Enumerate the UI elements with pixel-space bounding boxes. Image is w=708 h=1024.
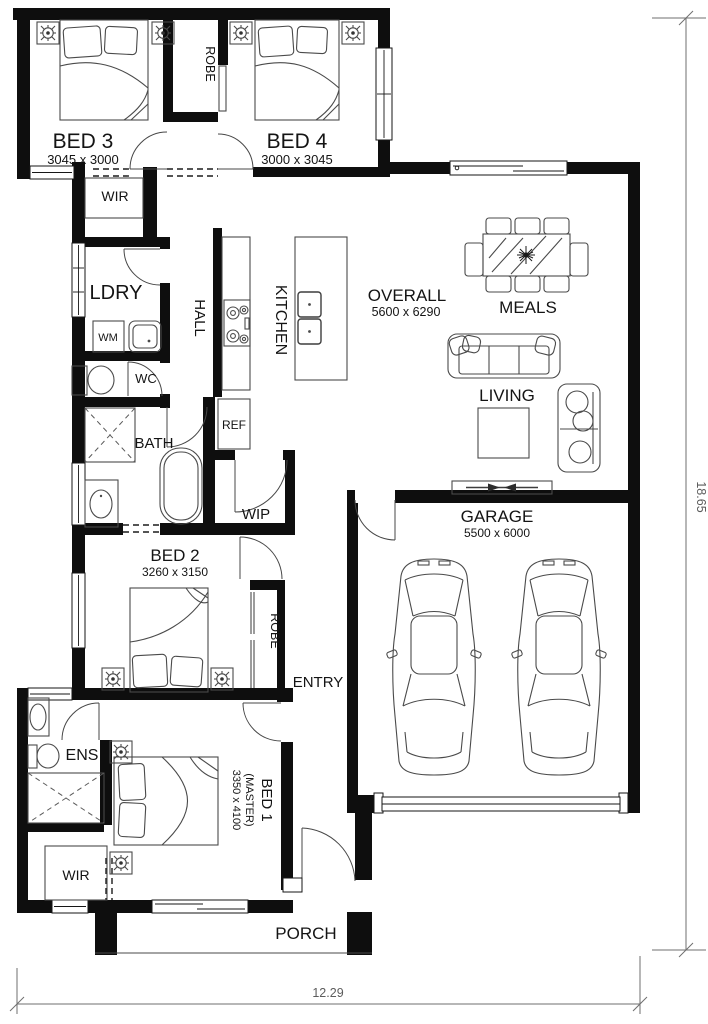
door-bed4 (218, 134, 253, 169)
room-label-bed2: BED 2 (150, 546, 199, 565)
porch-pier-left (95, 912, 117, 955)
overall-label: OVERALL (368, 286, 446, 305)
window-bed1 (152, 900, 248, 913)
porch-pier-right (347, 912, 372, 955)
ens-shower (28, 773, 104, 823)
bed2-bed (130, 588, 208, 692)
cooktop (224, 300, 250, 346)
room-label-ens: ENS (66, 747, 99, 764)
room-dims-bed1: 3350 x 4100 (230, 770, 242, 831)
window-bed3 (30, 166, 74, 179)
robe-front (219, 66, 226, 111)
car-icon (386, 559, 482, 775)
door-wip (235, 460, 287, 512)
fan-icon (37, 22, 59, 44)
fan-icon (110, 852, 132, 874)
fan-icon (110, 741, 132, 763)
room-label-wir-bed1: WIR (62, 867, 89, 883)
room-label-entry: ENTRY (293, 674, 344, 691)
fixture-label-wm: WM (98, 332, 118, 344)
dimension-depth-value: 18.65 (694, 481, 708, 512)
door-front (283, 828, 355, 892)
fixture-label-ref: REF (222, 418, 246, 432)
door-bed2 (240, 537, 282, 579)
door-bed3 (130, 132, 167, 169)
room-label-robe-top: ROBE (203, 46, 217, 81)
room-label-wip: WIP (242, 506, 270, 523)
sofa (448, 334, 560, 378)
room-label-bed3: BED 3 (53, 130, 114, 153)
robe-bed2-front (251, 592, 254, 688)
floor-plan-drawing: BED 3 3045 x 3000 BED 4 3000 x 3045 ROBE… (0, 0, 708, 1024)
garage-door (374, 793, 628, 813)
room-label-bed1-master: (MASTER) (243, 773, 255, 826)
dimension-width: 12.29 (10, 956, 647, 1014)
coffee-table (478, 408, 529, 458)
fan-icon (230, 22, 252, 44)
door-ldry (124, 249, 160, 285)
bath-shower (85, 408, 135, 462)
room-label-wir-top: WIR (101, 188, 128, 204)
armchair-chaise (558, 384, 600, 472)
window-bath (72, 463, 85, 525)
laundry-tub (129, 321, 161, 352)
fan-icon (342, 22, 364, 44)
window-bed2 (72, 573, 85, 648)
bathtub (160, 448, 202, 524)
dimension-width-value: 12.29 (312, 986, 343, 1000)
room-label-garage: GARAGE (461, 507, 534, 526)
ens-toilet (28, 744, 59, 768)
room-label-hall: HALL (191, 299, 208, 337)
table-centerpiece (517, 246, 535, 264)
room-label-bath: BATH (135, 435, 174, 452)
room-dims-garage: 5500 x 6000 (464, 526, 530, 540)
dimension-depth: 18.65 (652, 11, 708, 957)
room-dims-bed2: 3260 x 3150 (142, 565, 208, 579)
bed3-bed (60, 20, 148, 120)
room-label-ldry: LDRY (90, 282, 143, 304)
room-label-meals: MEALS (499, 298, 557, 317)
room-label-kitchen: KITCHEN (272, 285, 289, 355)
bed1-bed (114, 757, 218, 845)
island-bench (295, 237, 347, 380)
floor-plan-page: BED 3 3045 x 3000 BED 4 3000 x 3045 ROBE… (0, 0, 708, 1024)
dining-table (465, 218, 588, 292)
window-wir (52, 900, 88, 913)
car-icon (511, 559, 607, 775)
room-label-porch: PORCH (275, 924, 336, 943)
bath-vanity (85, 480, 118, 527)
room-label-wc: WC (135, 371, 157, 386)
door-garage-internal (355, 500, 395, 540)
room-label-robe-bed2: ROBE (268, 613, 282, 648)
fan-icon (102, 668, 124, 690)
room-label-living: LIVING (479, 386, 535, 405)
room-dims-bed4: 3000 x 3045 (261, 152, 333, 167)
window-meals (450, 161, 567, 175)
fan-icon (211, 668, 233, 690)
overall-dims: 5600 x 6290 (372, 305, 441, 319)
window-bed4 (376, 48, 392, 140)
room-label-bed1: BED 1 (258, 778, 275, 821)
window-ldry (72, 243, 85, 317)
ens-vanity (28, 698, 49, 736)
room-dims-bed3: 3045 x 3000 (47, 152, 119, 167)
room-label-bed4: BED 4 (267, 130, 328, 153)
door-bed1 (243, 703, 281, 741)
bed4-bed (255, 20, 339, 120)
door-ens (62, 703, 99, 740)
